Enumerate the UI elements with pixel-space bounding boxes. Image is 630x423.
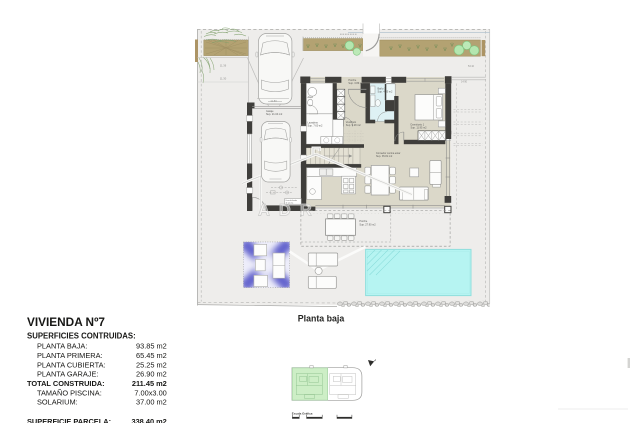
svg-text:Sup. 21.04 m2: Sup. 21.04 m2 <box>266 113 283 116</box>
svg-text:65.45 m2: 65.45 m2 <box>136 351 167 360</box>
svg-text:Sup. 27.90 m2: Sup. 27.90 m2 <box>359 223 376 226</box>
svg-text:11.36: 11.36 <box>220 64 227 68</box>
svg-text:26.90 m2: 26.90 m2 <box>136 370 167 379</box>
svg-text:Escala Gráfica: Escala Gráfica <box>292 411 313 415</box>
svg-text:37.00 m2: 37.00 m2 <box>136 398 167 407</box>
svg-text:Sup. 35.81 m2: Sup. 35.81 m2 <box>376 155 393 158</box>
svg-text:PLANTA GARAJE:: PLANTA GARAJE: <box>37 370 98 379</box>
svg-text:Sup. 4.35 m2: Sup. 4.35 m2 <box>378 91 393 94</box>
svg-text:TAMAÑO PISCINA:: TAMAÑO PISCINA: <box>37 388 102 397</box>
svg-text:SUPERFICIES CONTRUIDAS:: SUPERFICIES CONTRUIDAS: <box>27 332 136 341</box>
svg-text:Sup. 11.95 m2: Sup. 11.95 m2 <box>411 127 428 130</box>
svg-text:11.80: 11.80 <box>270 99 277 103</box>
svg-text:PLANTA CUBIERTA:: PLANTA CUBIERTA: <box>37 360 106 369</box>
svg-text:VIVIENDA Nº7: VIVIENDA Nº7 <box>27 315 105 329</box>
svg-text:SUPERFICIE PARCELA:: SUPERFICIE PARCELA: <box>27 417 111 423</box>
svg-text:Aseo: Aseo <box>308 96 314 99</box>
svg-text:Sup. 9.28 m2: Sup. 9.28 m2 <box>346 124 361 127</box>
svg-text:93.85 m2: 93.85 m2 <box>136 342 167 351</box>
svg-text:53.10: 53.10 <box>468 65 475 68</box>
svg-text:Sup. 3.86 m2: Sup. 3.86 m2 <box>348 82 363 85</box>
svg-text:211.45 m2: 211.45 m2 <box>132 379 167 388</box>
svg-text:SOLARIUM:: SOLARIUM: <box>37 398 78 407</box>
svg-text:Planta baja: Planta baja <box>298 313 345 323</box>
svg-text:7.00x3.00: 7.00x3.00 <box>134 388 166 397</box>
svg-text:25.25 m2: 25.25 m2 <box>136 360 167 369</box>
svg-text:11.30: 11.30 <box>220 77 227 81</box>
svg-text:PLANTA BAJA:: PLANTA BAJA: <box>37 342 87 351</box>
svg-text:338.40 m2: 338.40 m2 <box>131 417 166 423</box>
svg-text:TOTAL CONSTRUIDA:: TOTAL CONSTRUIDA: <box>27 379 105 388</box>
svg-text:Sup. 7.60 m2: Sup. 7.60 m2 <box>308 125 323 128</box>
svg-text:de piscina: de piscina <box>286 202 294 204</box>
svg-text:14.90: 14.90 <box>461 80 468 83</box>
svg-text:PLANTA PRIMERA:: PLANTA PRIMERA: <box>37 351 103 360</box>
